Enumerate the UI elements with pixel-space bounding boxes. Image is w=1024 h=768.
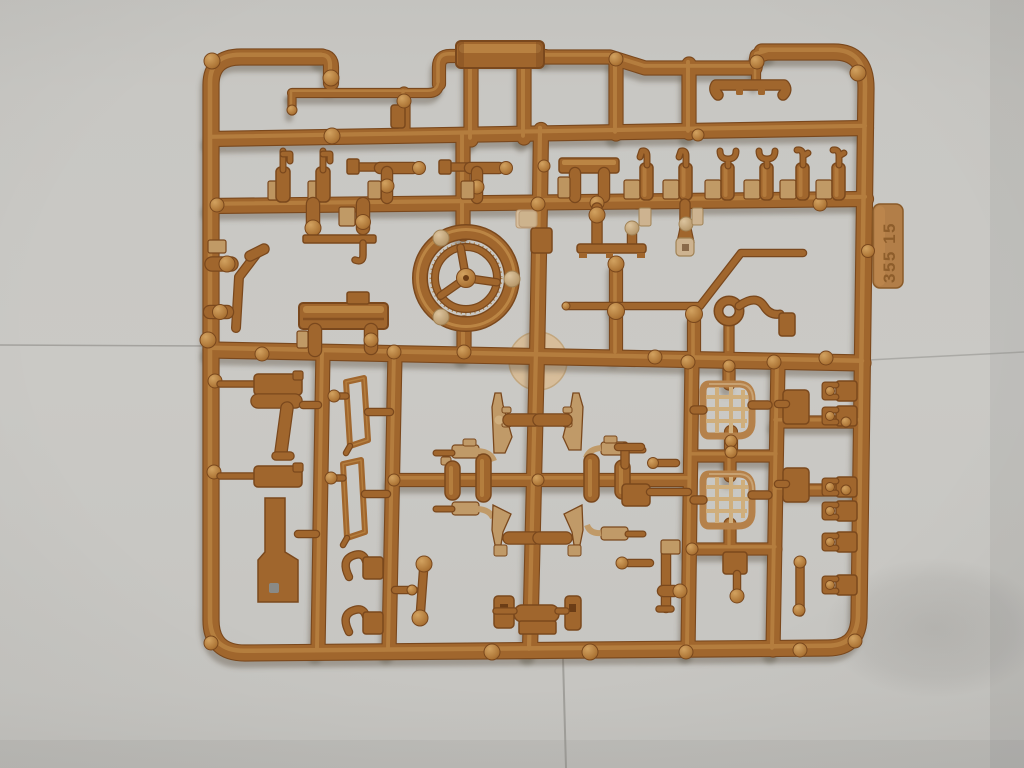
svg-text:355 15: 355 15 [880, 222, 899, 283]
